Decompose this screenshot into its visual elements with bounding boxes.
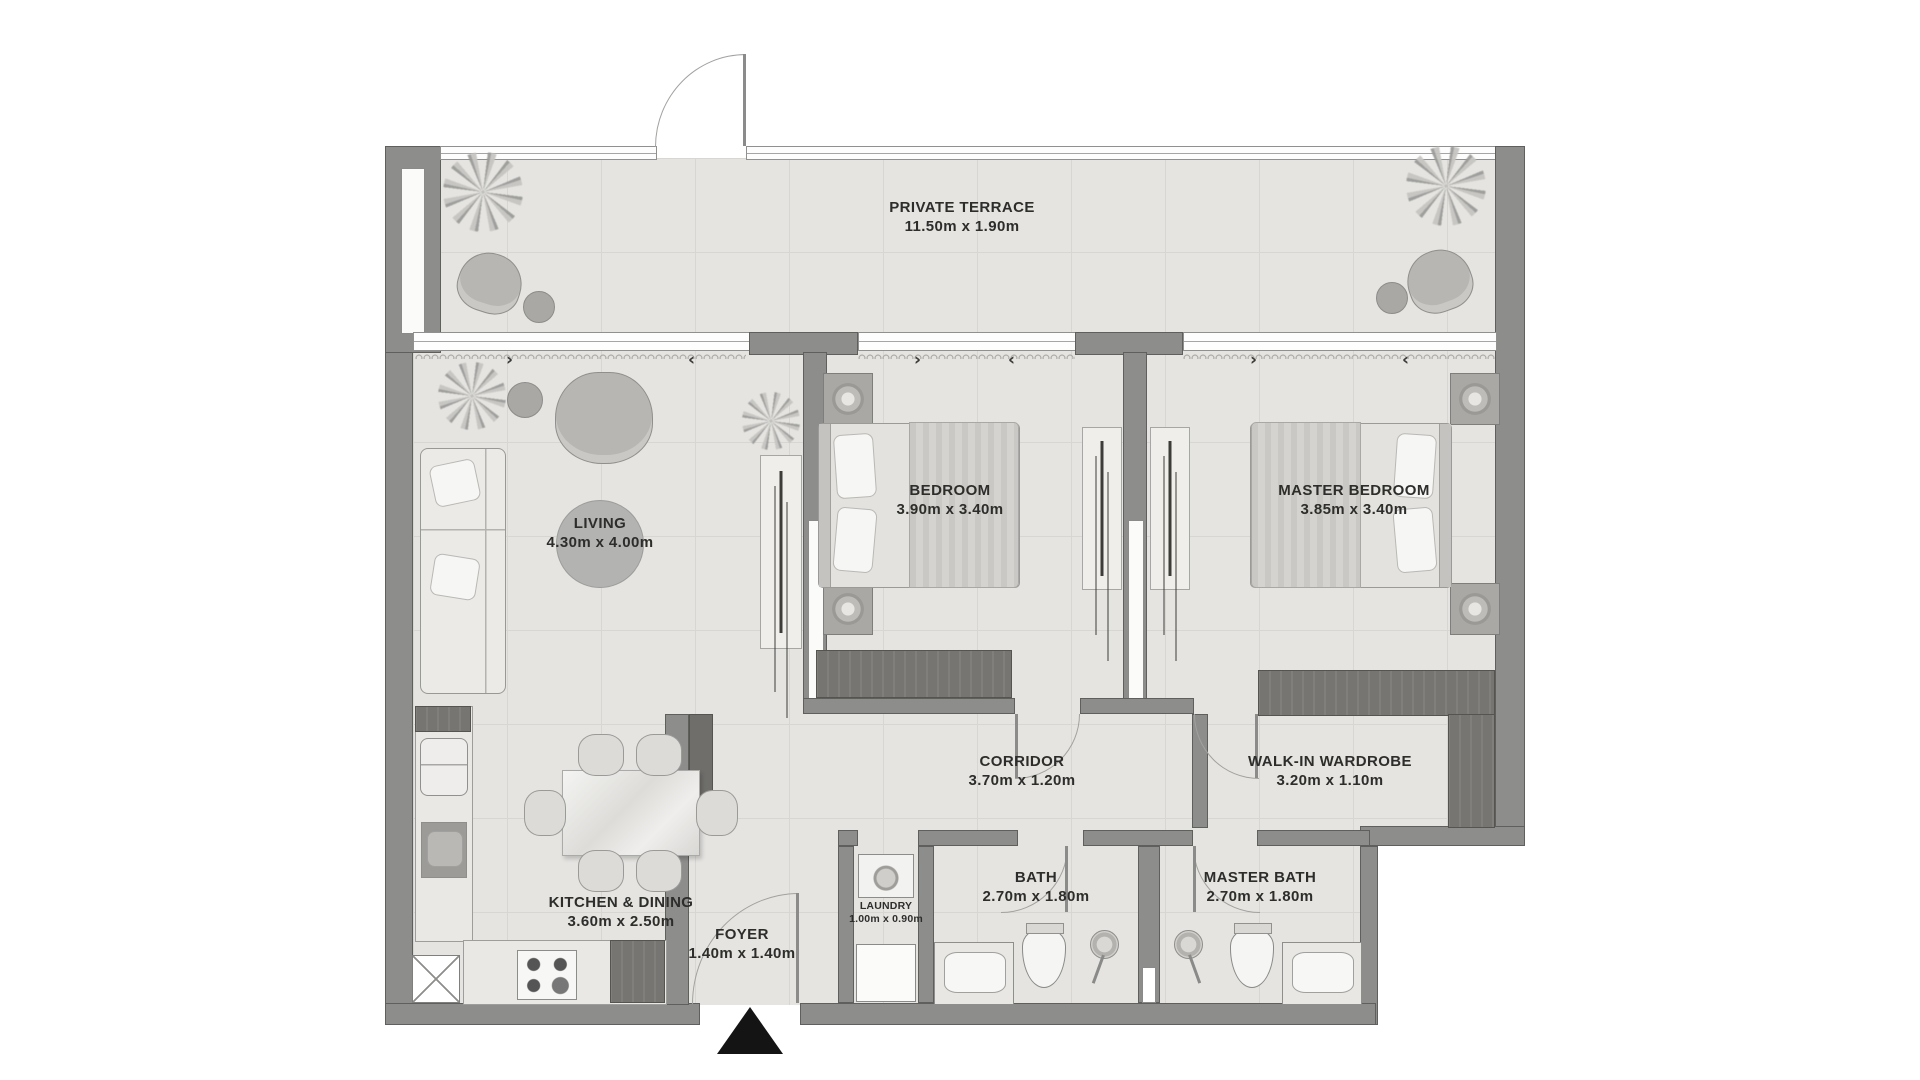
room-label-bedroom: BEDROOM 3.90m x 3.40m: [897, 481, 1004, 519]
headboard: [1439, 424, 1451, 587]
curtain-arrow-icon: ‹: [688, 352, 695, 369]
living-closet: [760, 455, 802, 649]
wall-bathrow-c: [1083, 830, 1193, 846]
plant-icon: [438, 362, 506, 430]
nightstand: [1450, 373, 1500, 425]
fridge: [420, 738, 468, 796]
room-dims: 11.50m x 1.90m: [905, 218, 1020, 235]
hanging-clothes-icon: [780, 471, 783, 632]
room-name: LIVING: [574, 515, 626, 532]
room-label-bath: BATH 2.70m x 1.80m: [983, 868, 1090, 906]
room-label-master-bedroom: MASTER BEDROOM 3.85m x 3.40m: [1278, 481, 1429, 519]
room-label-terrace: PRIVATE TERRACE 11.50m x 1.90m: [889, 198, 1034, 236]
toilet-tank: [1234, 923, 1271, 934]
wardrobe-unit-right: [1448, 714, 1495, 828]
lamp-icon: [832, 383, 864, 415]
wall-step: [1360, 826, 1525, 846]
room-name: KITCHEN & DINING: [549, 894, 694, 911]
terrace-table-left: [523, 291, 555, 323]
dining-chair: [524, 790, 566, 836]
lamp-icon: [1459, 593, 1491, 625]
master-closet: [1150, 427, 1190, 590]
room-name: BATH: [1015, 869, 1057, 886]
floor-plan: › ‹ › ‹ › ‹: [0, 0, 1920, 1080]
terrace-table-right: [1376, 282, 1408, 314]
room-label-foyer: FOYER 1.40m x 1.40m: [689, 925, 796, 963]
stove-icon: [517, 950, 577, 1000]
kitchen-cabinet-top: [415, 706, 471, 732]
room-name: PRIVATE TERRACE: [889, 199, 1034, 216]
terrace-floor: [413, 158, 1495, 334]
room-dims: 3.70m x 1.20m: [969, 772, 1076, 789]
room-dims: 1.40m x 1.40m: [689, 945, 796, 962]
room-dims: 4.30m x 4.00m: [547, 534, 654, 551]
wall-bathrow-b: [918, 830, 1018, 846]
plant-icon: [1406, 146, 1486, 226]
nightstand: [823, 373, 873, 425]
room-name: WALK-IN WARDROBE: [1248, 753, 1412, 770]
pillow: [832, 506, 877, 573]
wall-corridor-top-a: [803, 698, 1015, 714]
plant-icon: [742, 392, 800, 450]
room-name: LAUNDRY: [860, 900, 912, 912]
wall-right-lower: [1360, 846, 1378, 1025]
room-label-kitchen: KITCHEN & DINING 3.60m x 2.50m: [549, 893, 694, 931]
headboard: [819, 424, 831, 587]
room-label-living: LIVING 4.30m x 4.00m: [547, 514, 654, 552]
dining-chair: [636, 850, 682, 892]
wall-right-upper: [1495, 146, 1525, 846]
curtain-arrow-icon: ‹: [1008, 352, 1015, 369]
wall-corridor-top-b: [1080, 698, 1194, 714]
wall-bottom-right: [800, 1003, 1376, 1025]
room-label-wardrobe: WALK-IN WARDROBE 3.20m x 1.10m: [1248, 752, 1412, 790]
curtain-master: [1183, 350, 1495, 359]
room-dims: 3.20m x 1.10m: [1277, 772, 1384, 789]
hanging-clothes-icon: [1101, 441, 1104, 576]
dining-chair: [696, 790, 738, 836]
exterior-cutout: [1378, 846, 1520, 1026]
room-name: MASTER BEDROOM: [1278, 482, 1429, 499]
curtain-living: [415, 350, 746, 359]
bedroom-wardrobe: [816, 650, 1012, 698]
bedroom-closet: [1082, 427, 1122, 590]
curtain-bedroom: [858, 350, 1075, 359]
side-table: [507, 382, 543, 418]
basin: [944, 952, 1005, 993]
master-bath-sink: [1282, 942, 1362, 1005]
washing-machine-icon: [858, 854, 914, 898]
room-name: MASTER BATH: [1204, 869, 1316, 886]
curtain-arrow-icon: ›: [506, 352, 513, 369]
window-left: [401, 168, 425, 334]
bath-sink: [934, 942, 1014, 1005]
curtain-arrow-icon: ‹: [1402, 352, 1409, 369]
window-bedroom: [858, 332, 1077, 351]
room-label-corridor: CORRIDOR 3.70m x 1.20m: [969, 752, 1076, 790]
terrace-door-arc: [655, 54, 746, 147]
room-label-laundry: LAUNDRY 1.00m x 0.90m: [849, 900, 923, 926]
room-dims: 3.60m x 2.50m: [568, 913, 675, 930]
room-name: CORRIDOR: [980, 753, 1065, 770]
room-label-master-bath: MASTER BATH 2.70m x 1.80m: [1204, 868, 1316, 906]
kitchen-sink: [421, 822, 467, 878]
lamp-icon: [832, 593, 864, 625]
wall-bathrow-d: [1257, 830, 1370, 846]
nightstand: [823, 583, 873, 635]
dining-chair: [578, 734, 624, 776]
wall-bathrow-a: [838, 830, 858, 846]
wardrobe-unit-top: [1258, 670, 1495, 716]
dining-chair: [578, 850, 624, 892]
pillow: [833, 433, 877, 500]
laundry-cabinet: [856, 944, 916, 1002]
plant-icon: [443, 152, 523, 232]
wall-bottom-left: [385, 1003, 700, 1025]
terrace-parapet-right: [746, 146, 1497, 160]
lamp-icon: [1459, 383, 1491, 415]
pocket-door-master: [1128, 520, 1144, 708]
window-living: [413, 332, 751, 351]
master-bath-door-leaf: [1193, 846, 1196, 912]
armchair: [555, 372, 653, 464]
room-dims: 2.70m x 1.80m: [1207, 888, 1314, 905]
dining-chair: [636, 734, 682, 776]
curtain-arrow-icon: ›: [914, 352, 921, 369]
window-master: [1183, 332, 1497, 351]
room-name: FOYER: [715, 926, 769, 943]
room-dims: 3.85m x 3.40m: [1301, 501, 1408, 518]
bath-shaft: [1143, 968, 1155, 1002]
room-name: BEDROOM: [909, 482, 990, 499]
room-dims: 1.00m x 0.90m: [849, 913, 923, 925]
room-dims: 3.90m x 3.40m: [897, 501, 1004, 518]
room-dims: 2.70m x 1.80m: [983, 888, 1090, 905]
basin: [1292, 952, 1353, 993]
kitchen-cabinet-right: [610, 940, 665, 1003]
dining-table: [562, 770, 700, 856]
entrance-arrow-icon: [717, 1007, 783, 1054]
toilet-tank: [1026, 923, 1063, 934]
nightstand: [1450, 583, 1500, 635]
shaft-box: [412, 955, 460, 1003]
terrace-door-leaf: [743, 54, 746, 146]
curtain-arrow-icon: ›: [1250, 352, 1257, 369]
entrance-door-leaf: [796, 893, 799, 1003]
basin: [427, 831, 462, 868]
sofa-pillow: [429, 553, 481, 602]
hanging-clothes-icon: [1169, 441, 1172, 576]
